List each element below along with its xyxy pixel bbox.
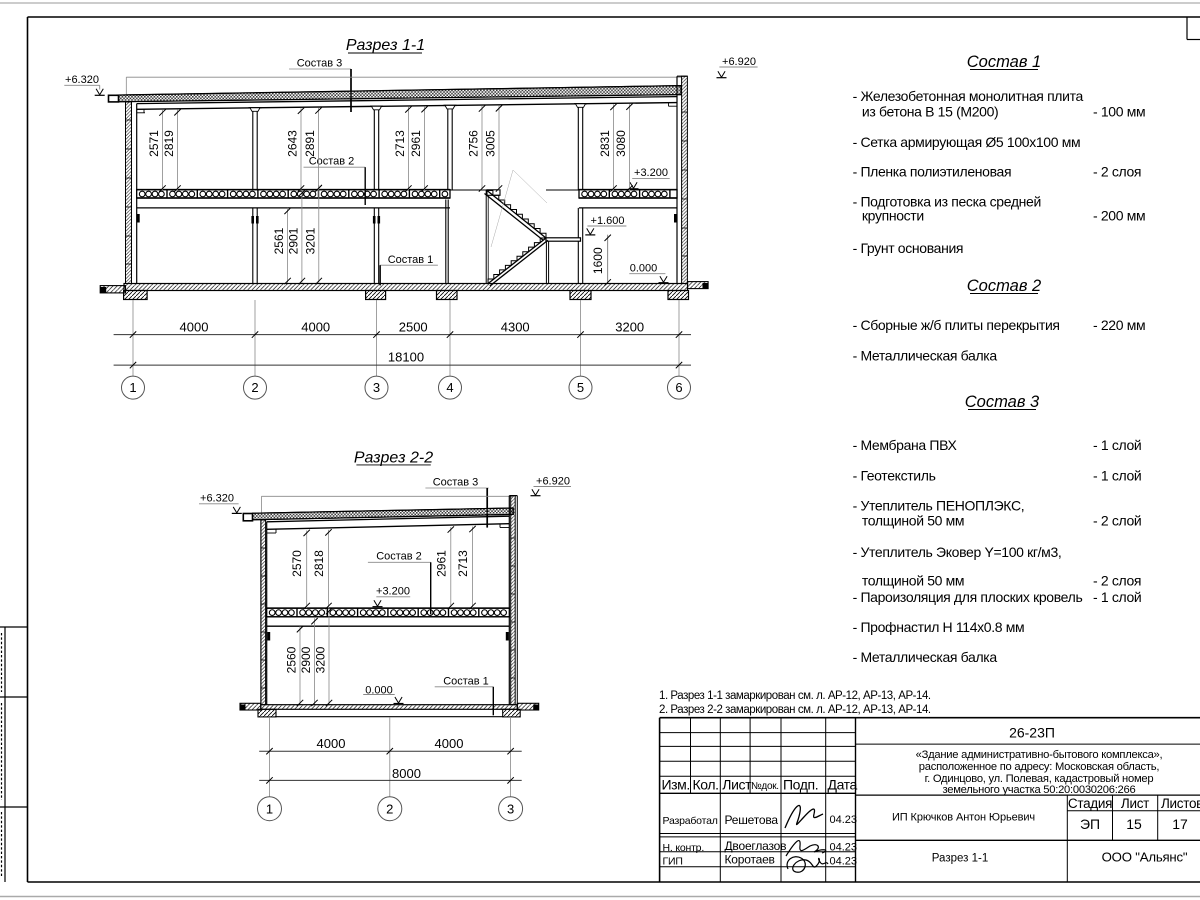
svg-text:Состав 1: Состав 1	[388, 254, 434, 266]
svg-text:+6.920: +6.920	[722, 56, 756, 68]
svg-text:3005: 3005	[484, 130, 498, 157]
svg-text:18100: 18100	[388, 350, 424, 365]
svg-text:04.23: 04.23	[830, 842, 858, 854]
svg-text:2. Разрез 2-2 замаркирован см.: 2. Разрез 2-2 замаркирован см. л. АР-12,…	[659, 704, 931, 716]
svg-text:земельного участка 50:20:00302: земельного участка 50:20:0030206:266	[943, 784, 1136, 796]
svg-text:Состав 1: Состав 1	[967, 53, 1041, 71]
svg-text:2570: 2570	[290, 550, 304, 577]
svg-text:из бетона В 15 (М200): из бетона В 15 (М200)	[862, 104, 998, 120]
svg-text:2961: 2961	[434, 550, 448, 577]
svg-text:- Пароизоляция для плоских кро: - Пароизоляция для плоских кровель	[853, 589, 1083, 605]
svg-text:Состав 1: Состав 1	[443, 676, 489, 688]
svg-text:04.23: 04.23	[830, 856, 858, 868]
svg-text:- Грунт основания: - Грунт основания	[853, 240, 964, 256]
svg-text:Разработал: Разработал	[663, 815, 718, 827]
svg-text:- Геотекстиль: - Геотекстиль	[853, 468, 936, 484]
svg-text:- Сборные ж/б плиты перекрытия: - Сборные ж/б плиты перекрытия	[853, 317, 1060, 333]
svg-text:- Сетка армирующая Ø5 100x100: - Сетка армирующая Ø5 100x100 мм	[853, 134, 1081, 150]
svg-text:крупности: крупности	[862, 208, 924, 224]
svg-text:Разрез 1-1: Разрез 1-1	[932, 853, 988, 865]
svg-text:2560: 2560	[285, 646, 299, 673]
svg-text:3080: 3080	[614, 130, 628, 157]
svg-text:+6.920: +6.920	[536, 476, 570, 488]
svg-text:ООО "Альянс": ООО "Альянс"	[1102, 850, 1188, 865]
svg-text:2713: 2713	[456, 550, 470, 577]
svg-text:6: 6	[675, 380, 682, 395]
svg-text:ЭП: ЭП	[1080, 816, 1100, 832]
svg-text:0.000: 0.000	[630, 263, 658, 275]
svg-text:Двоеглазов: Двоеглазов	[725, 839, 787, 853]
svg-text:- 2 слоя: - 2 слоя	[1093, 573, 1141, 589]
svg-text:Состав 3: Состав 3	[965, 393, 1040, 411]
svg-text:3: 3	[507, 801, 514, 816]
svg-text:Н. контр.: Н. контр.	[663, 842, 705, 854]
svg-text:1: 1	[266, 801, 273, 816]
svg-text:- Утеплитель Эковер Y=100 кг/м: - Утеплитель Эковер Y=100 кг/м3,	[853, 544, 1062, 560]
svg-text:- Металлическая балка: - Металлическая балка	[853, 649, 998, 665]
svg-text:Состав 3: Состав 3	[433, 477, 479, 489]
svg-text:2900: 2900	[299, 646, 313, 673]
svg-text:2818: 2818	[312, 550, 326, 577]
svg-text:Подп.: Подп.	[783, 777, 818, 793]
svg-text:3201: 3201	[303, 227, 317, 254]
svg-text:- Профнастил Н 114x0.8 мм: - Профнастил Н 114x0.8 мм	[853, 619, 1025, 635]
svg-text:Изм.: Изм.	[662, 777, 690, 793]
svg-text:Дата: Дата	[828, 777, 858, 793]
svg-text:Состав 3: Состав 3	[297, 58, 343, 70]
svg-text:«Здание административно-бытово: «Здание административно-бытового комплек…	[916, 749, 1163, 761]
svg-text:Листов: Листов	[1161, 796, 1200, 811]
svg-text:26-23П: 26-23П	[1009, 725, 1055, 741]
svg-text:2713: 2713	[393, 130, 407, 157]
svg-text:2: 2	[251, 380, 258, 395]
svg-text:расположенное по адресу: Моско: расположенное по адресу: Московская обла…	[919, 761, 1160, 773]
svg-text:- 2 слоя: - 2 слоя	[1093, 164, 1141, 180]
svg-text:- 1 слой: - 1 слой	[1093, 589, 1141, 605]
svg-text:№док.: №док.	[751, 781, 779, 792]
svg-text:- Железобетонная монолитная п: - Железобетонная монолитная плита	[853, 88, 1084, 104]
svg-text:- Пленка полиэтиленовая: - Пленка полиэтиленовая	[853, 164, 1012, 180]
svg-text:2831: 2831	[598, 130, 612, 157]
svg-text:3200: 3200	[615, 320, 644, 335]
svg-text:2891: 2891	[303, 130, 317, 157]
svg-text:- Металлическая балка: - Металлическая балка	[853, 348, 998, 364]
svg-text:17: 17	[1172, 816, 1188, 832]
svg-text:+3.200: +3.200	[634, 167, 668, 179]
svg-text:1600: 1600	[591, 247, 605, 274]
svg-text:4000: 4000	[180, 320, 209, 335]
svg-text:2561: 2561	[272, 227, 286, 254]
svg-text:+3.200: +3.200	[376, 586, 410, 598]
svg-text:4300: 4300	[501, 320, 530, 335]
svg-text:2819: 2819	[162, 130, 176, 157]
svg-text:2961: 2961	[409, 130, 423, 157]
svg-text:2571: 2571	[147, 130, 161, 157]
svg-text:2901: 2901	[286, 227, 300, 254]
svg-text:- 220 мм: - 220 мм	[1093, 317, 1145, 333]
svg-text:4000: 4000	[435, 736, 464, 751]
svg-text:4000: 4000	[301, 320, 330, 335]
svg-text:3: 3	[373, 380, 380, 395]
svg-text:+6.320: +6.320	[200, 493, 234, 505]
svg-text:1: 1	[129, 380, 136, 395]
svg-text:Разрез 1-1: Разрез 1-1	[346, 37, 425, 54]
svg-text:+1.600: +1.600	[591, 215, 625, 227]
svg-text:4: 4	[446, 380, 453, 395]
svg-text:Разрез 2-2: Разрез 2-2	[354, 450, 433, 467]
svg-text:+6.320: +6.320	[65, 74, 99, 86]
svg-text:ГИП: ГИП	[663, 856, 683, 868]
svg-text:15: 15	[1126, 816, 1142, 832]
svg-text:3200: 3200	[314, 646, 328, 673]
svg-text:- Утеплитель ПЕНОПЛЭКС,: - Утеплитель ПЕНОПЛЭКС,	[853, 498, 1025, 514]
svg-text:- 2 слой: - 2 слой	[1093, 513, 1141, 529]
svg-text:Состав 2: Состав 2	[967, 277, 1041, 295]
svg-text:ИП Крючков Антон Юрьевич: ИП Крючков Антон Юрьевич	[892, 812, 1035, 824]
svg-text:- 1 слой: - 1 слой	[1093, 468, 1141, 484]
svg-text:Лист: Лист	[722, 777, 752, 793]
svg-text:2500: 2500	[399, 320, 428, 335]
svg-text:Решетова: Решетова	[725, 813, 779, 827]
svg-text:04.23: 04.23	[830, 814, 858, 826]
svg-text:Лист: Лист	[1121, 796, 1149, 811]
svg-text:8000: 8000	[392, 766, 421, 781]
svg-text:Кол.: Кол.	[693, 777, 719, 793]
svg-text:4000: 4000	[317, 736, 346, 751]
svg-text:5: 5	[577, 380, 584, 395]
svg-text:толщиной 50 мм: толщиной 50 мм	[862, 513, 964, 529]
svg-text:2: 2	[386, 801, 393, 816]
svg-text:- 1 слой: - 1 слой	[1093, 437, 1141, 453]
svg-text:толщиной 50 мм: толщиной 50 мм	[862, 573, 964, 589]
svg-text:1. Разрез 1-1 замаркирован см.: 1. Разрез 1-1 замаркирован см. л. АР-12,…	[659, 690, 931, 702]
svg-text:- 200 мм: - 200 мм	[1093, 208, 1145, 224]
svg-text:Коротаев: Коротаев	[725, 853, 775, 867]
svg-text:2643: 2643	[286, 130, 300, 157]
svg-text:2756: 2756	[467, 130, 481, 157]
svg-text:- Мембрана ПВХ: - Мембрана ПВХ	[853, 437, 958, 453]
svg-text:- 100 мм: - 100 мм	[1093, 104, 1145, 120]
svg-text:Стадия: Стадия	[1068, 796, 1112, 811]
svg-text:Состав 2: Состав 2	[376, 551, 422, 563]
